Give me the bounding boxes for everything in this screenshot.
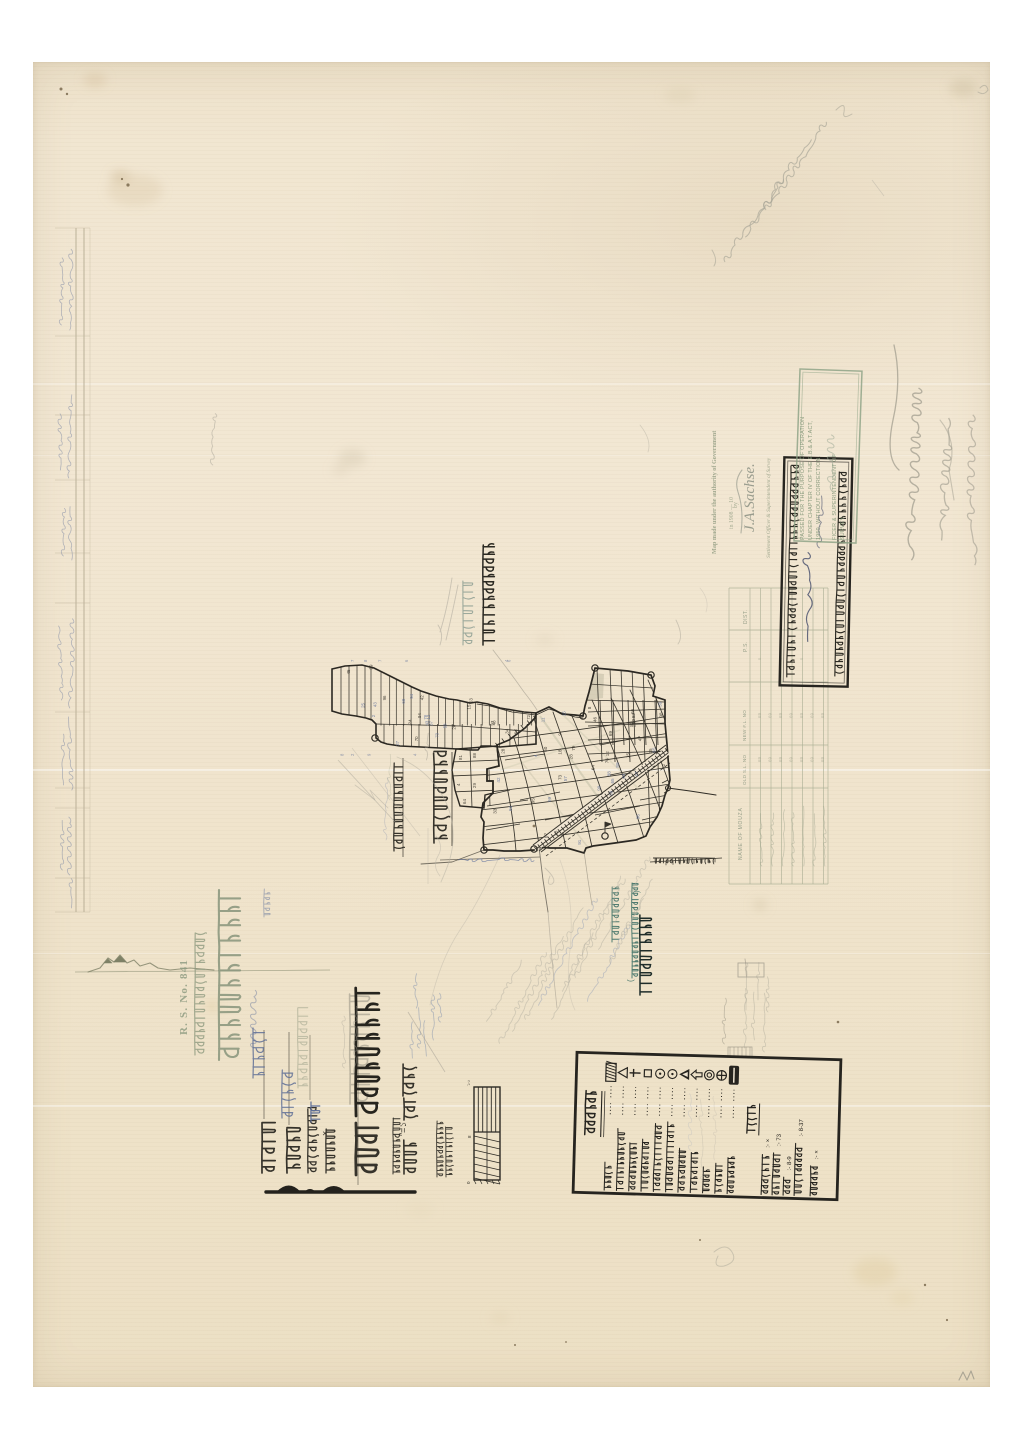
svg-text:25: 25: [360, 702, 365, 707]
svg-text::- 73: :- 73: [776, 1133, 782, 1146]
svg-text:15: 15: [467, 704, 472, 709]
svg-text:81: 81: [458, 755, 463, 760]
svg-text:87: 87: [544, 833, 549, 839]
svg-text:9: 9: [557, 733, 562, 736]
svg-text:65: 65: [651, 747, 656, 753]
svg-text:4: 4: [533, 754, 538, 757]
svg-text:59: 59: [368, 664, 373, 669]
svg-text:J.A.Sachse.: J.A.Sachse.: [742, 463, 758, 532]
svg-text:60: 60: [543, 746, 548, 752]
svg-text:76: 76: [605, 758, 610, 764]
svg-text:OLD S.L. NO: OLD S.L. NO: [742, 755, 747, 785]
svg-text:69: 69: [799, 757, 804, 762]
svg-text:4: 4: [413, 753, 418, 756]
svg-text:63: 63: [508, 805, 513, 811]
svg-text:64: 64: [462, 799, 467, 804]
svg-text:47: 47: [634, 771, 639, 777]
svg-text:8: 8: [467, 1135, 472, 1138]
svg-text:28: 28: [569, 754, 574, 760]
svg-text:Map made under the authority o: Map made under the authority of Governme…: [711, 430, 718, 554]
svg-text:78: 78: [423, 714, 428, 719]
svg-text:43: 43: [425, 720, 430, 725]
svg-text:UNDER CHAPTER IV OF THE E.B.&.: UNDER CHAPTER IV OF THE E.B.&.A T.ACT,: [808, 421, 814, 540]
svg-text:88: 88: [472, 753, 477, 758]
svg-text:69: 69: [778, 757, 783, 762]
svg-text:65: 65: [610, 778, 615, 784]
svg-text:28: 28: [500, 748, 505, 754]
svg-text::- 8-9: :- 8-9: [787, 1156, 793, 1171]
svg-text::- ×: :- ×: [765, 1138, 771, 1147]
svg-text:42: 42: [496, 777, 501, 783]
svg-text:23: 23: [554, 830, 559, 836]
svg-text:12: 12: [661, 763, 666, 769]
svg-text:57: 57: [563, 776, 568, 782]
svg-text:45: 45: [346, 669, 351, 674]
svg-text:96: 96: [636, 814, 641, 820]
svg-text:39: 39: [658, 701, 663, 707]
svg-text:46: 46: [593, 716, 598, 722]
svg-text:94: 94: [417, 713, 422, 718]
svg-text:73: 73: [557, 774, 562, 780]
svg-text:68: 68: [401, 698, 406, 703]
svg-text:69: 69: [799, 713, 804, 718]
svg-text:8: 8: [363, 659, 368, 662]
svg-text:96: 96: [382, 695, 387, 700]
svg-text:69: 69: [631, 718, 636, 724]
svg-text:by: by: [733, 502, 739, 508]
svg-text:69: 69: [757, 757, 762, 762]
svg-text:79: 79: [571, 745, 576, 751]
svg-text::- ×: :- ×: [814, 1150, 820, 1159]
svg-text:72: 72: [526, 714, 531, 719]
svg-text:24: 24: [408, 719, 413, 724]
svg-text:69: 69: [810, 713, 815, 718]
svg-text:69: 69: [810, 757, 815, 762]
svg-text:63: 63: [469, 698, 474, 703]
svg-text:১০: ১০: [466, 1080, 472, 1087]
svg-text:70: 70: [414, 736, 419, 741]
svg-text:97: 97: [490, 720, 495, 725]
svg-text:4: 4: [456, 783, 461, 786]
svg-text:DIST.: DIST.: [743, 609, 749, 624]
svg-text:58: 58: [442, 723, 447, 728]
svg-text:0: 0: [466, 1181, 471, 1184]
svg-text:94: 94: [409, 693, 414, 698]
svg-text:PASSED FOR THE PURPOSE OF OPER: PASSED FOR THE PURPOSE OF OPERATION: [800, 417, 806, 540]
svg-text:98: 98: [658, 712, 663, 718]
svg-text:1950, WITHOUT CORRECTION.: 1950, WITHOUT CORRECTION.: [816, 456, 822, 540]
svg-text:27: 27: [395, 740, 400, 745]
svg-text:44: 44: [621, 773, 626, 779]
svg-text:20: 20: [452, 724, 457, 729]
svg-text:9: 9: [367, 753, 372, 756]
svg-text:12: 12: [605, 751, 610, 757]
svg-text:69: 69: [757, 713, 762, 718]
svg-text:P.S.: P.S.: [743, 641, 749, 652]
svg-text:99: 99: [547, 797, 552, 803]
svg-text:69: 69: [789, 713, 794, 718]
svg-text:47: 47: [638, 736, 643, 742]
svg-text:91: 91: [577, 839, 582, 845]
svg-text:SURVEY.: SURVEY.: [840, 516, 846, 540]
svg-text:95: 95: [531, 798, 536, 804]
svg-text:18: 18: [557, 749, 562, 755]
svg-text:69: 69: [778, 713, 783, 718]
svg-text:69: 69: [608, 731, 613, 737]
svg-text:6: 6: [404, 659, 409, 662]
svg-text:2: 2: [371, 714, 376, 717]
svg-text:69: 69: [768, 713, 773, 718]
svg-text:64: 64: [590, 765, 595, 771]
svg-text:NEW #.L. NO: NEW #.L. NO: [742, 710, 747, 741]
svg-text:×: ×: [320, 1131, 330, 1136]
svg-text:82: 82: [631, 713, 636, 719]
svg-text:(: (: [626, 979, 635, 982]
svg-text:15: 15: [626, 753, 631, 759]
svg-text:6: 6: [757, 657, 762, 660]
svg-text:7: 7: [378, 659, 383, 662]
svg-text:R. S. No. 841: R. S. No. 841: [178, 959, 190, 1035]
svg-text:69: 69: [820, 713, 825, 718]
svg-text:2: 2: [350, 753, 355, 756]
svg-text:89: 89: [615, 762, 620, 768]
svg-text:69: 69: [789, 757, 794, 762]
svg-text:29: 29: [472, 783, 477, 788]
svg-text:8: 8: [340, 753, 345, 756]
svg-text::- 8-37: :- 8-37: [799, 1119, 806, 1137]
svg-text:73: 73: [435, 732, 440, 737]
svg-text:43: 43: [373, 702, 378, 707]
svg-text:42: 42: [420, 695, 425, 700]
svg-text:4: 4: [504, 659, 509, 662]
svg-text:99: 99: [597, 785, 602, 791]
svg-text:64: 64: [514, 729, 519, 735]
svg-text:8: 8: [587, 706, 592, 709]
svg-text:88: 88: [606, 771, 611, 777]
svg-text:7: 7: [350, 659, 355, 662]
svg-text:59: 59: [608, 790, 613, 796]
svg-text:in 1908 — 10: in 1908 — 10: [729, 497, 735, 529]
svg-text:11: 11: [540, 717, 545, 722]
svg-text:Settlement Officer & Superinte: Settlement Officer & Superintendent of S…: [765, 457, 772, 558]
svg-text:6: 6: [799, 657, 804, 660]
svg-text:15: 15: [561, 711, 566, 717]
svg-text:66: 66: [630, 708, 635, 714]
svg-text:33: 33: [493, 808, 498, 814]
svg-text:69: 69: [768, 757, 773, 762]
svg-text:NAME OF MOUZA: NAME OF MOUZA: [738, 807, 744, 860]
svg-text:34: 34: [504, 728, 509, 733]
svg-text:69: 69: [820, 757, 825, 762]
